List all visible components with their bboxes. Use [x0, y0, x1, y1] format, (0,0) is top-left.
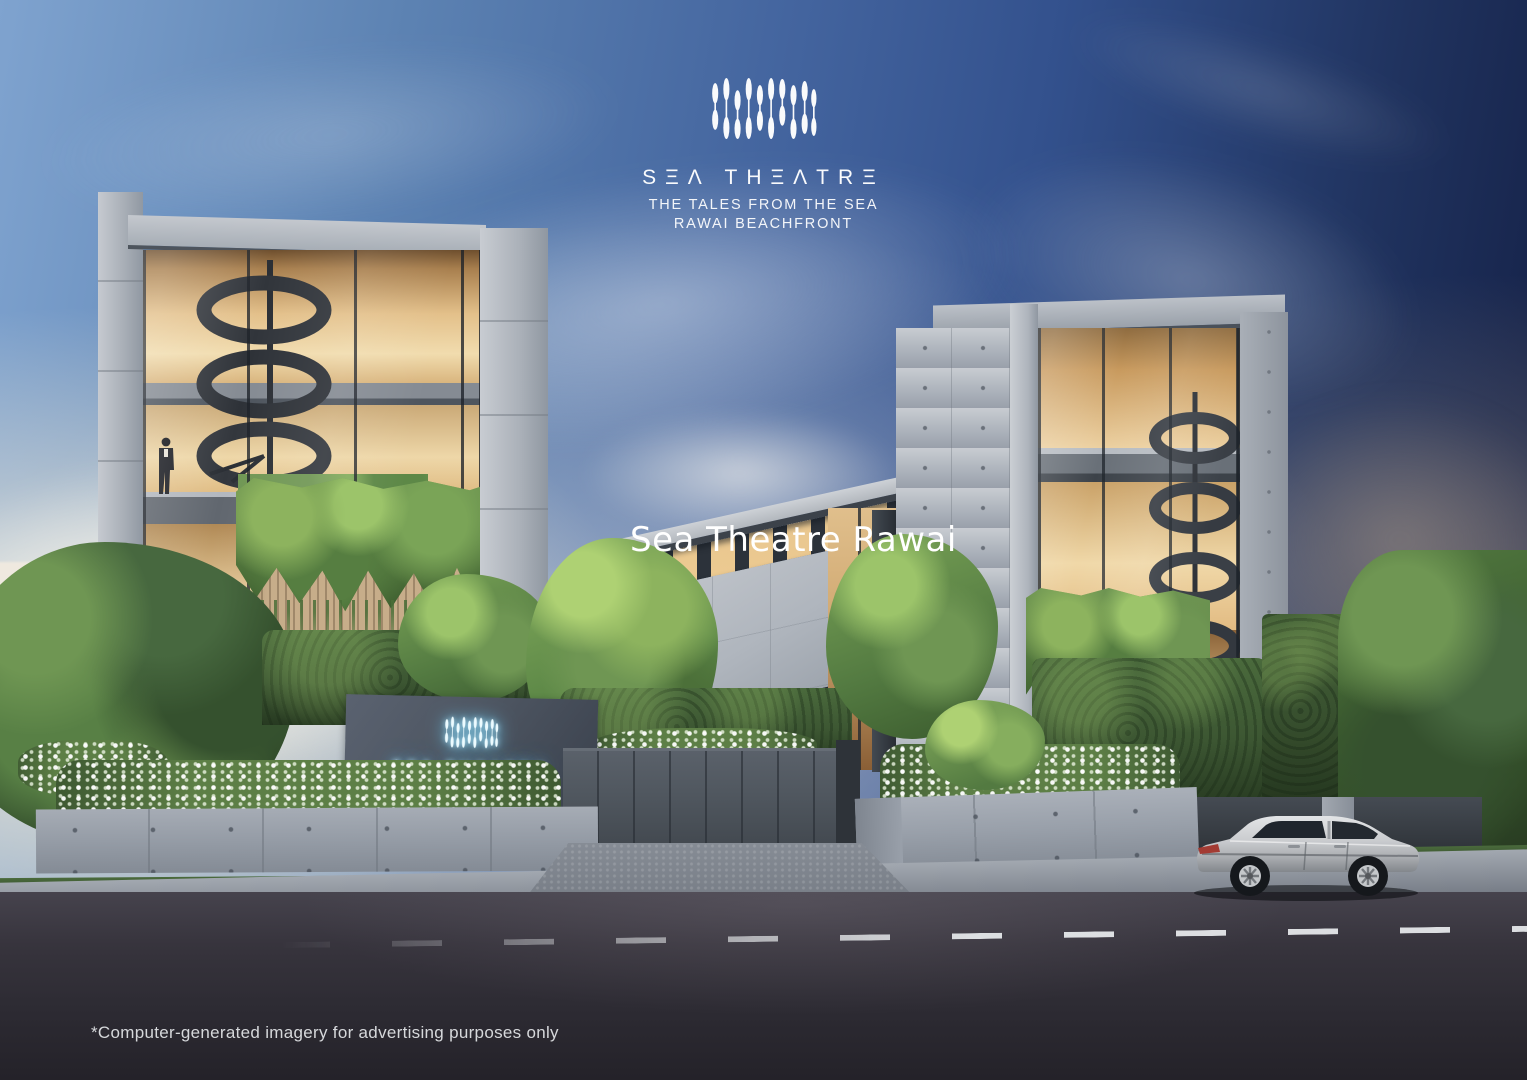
neon-paddle-oars-icon [444, 716, 499, 748]
watermark-text: Sea Theatre Rawai [630, 520, 957, 560]
left-planter-wall [36, 807, 598, 874]
brand-tagline-line2: RAWAI BEACHFRONT [0, 216, 1527, 232]
disclaimer-text: *Computer-generated imagery for advertis… [91, 1023, 559, 1043]
entrance-gate [563, 748, 837, 849]
flower-strip-left-planter [56, 760, 561, 810]
brand-tagline-line1: THE TALES FROM THE SEA [0, 197, 1527, 213]
brand-wordmark: SΞΛ THΞΛTRΞ [0, 166, 1527, 190]
sea-theatre-advert-image: SΞΛ THΞΛTRΞ [0, 0, 1527, 1080]
paddle-oars-logo-icon [711, 78, 817, 139]
road [0, 892, 1527, 1080]
brand-logo-lockup: SΞΛ THΞΛTRΞ THE TALES FROM THE SEA RAWAI… [0, 78, 1527, 232]
silver-sedan-car [1188, 798, 1426, 908]
